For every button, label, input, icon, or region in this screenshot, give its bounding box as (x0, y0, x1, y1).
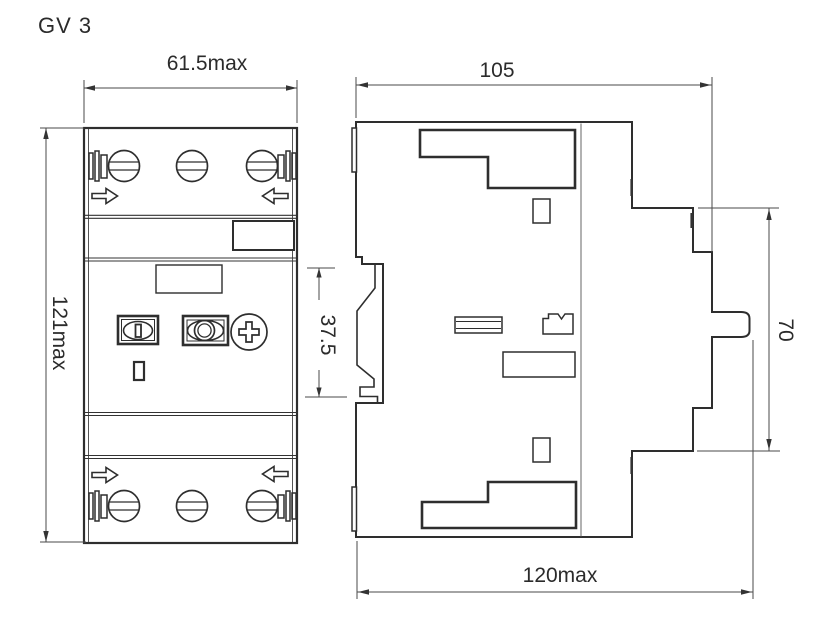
dim-width-lines (84, 80, 297, 123)
arrowhead (84, 85, 95, 90)
arrowhead (316, 388, 321, 398)
din-rail-groove-icon (357, 265, 378, 403)
dim-front-width-label: 61.5max (147, 52, 267, 76)
mounting-foot-icon (352, 487, 357, 531)
line-art (0, 0, 824, 628)
dim-side-rail-label: 37.5 (317, 300, 339, 370)
arrowhead (766, 439, 771, 450)
arrowhead (741, 589, 752, 594)
arrowhead (316, 268, 321, 278)
dim-side-depth-label: 120max (500, 564, 620, 588)
label-area (156, 265, 222, 293)
dim-side-height-label: 70 (775, 307, 797, 353)
dim-side-width-label: 105 (447, 59, 547, 83)
trip-indicator-icon (134, 362, 144, 380)
dim-front-height-label: 121max (47, 288, 71, 378)
model-title: GV 3 (38, 13, 92, 39)
arrowhead (357, 82, 368, 87)
arrowhead (766, 209, 771, 220)
stop-button-icon (183, 316, 228, 345)
band-window (233, 221, 294, 250)
front-view (84, 128, 297, 543)
side-view (352, 122, 750, 537)
arrowhead (700, 82, 711, 87)
dimension-drawing-page: GV 3 61.5max 121max 105 37.5 70 120max (0, 0, 824, 628)
mounting-foot-icon (352, 128, 357, 172)
start-button-icon (118, 316, 158, 344)
arrowhead (286, 85, 297, 90)
arrowhead (43, 128, 48, 139)
arrowhead (43, 531, 48, 542)
arrowhead (358, 589, 369, 594)
